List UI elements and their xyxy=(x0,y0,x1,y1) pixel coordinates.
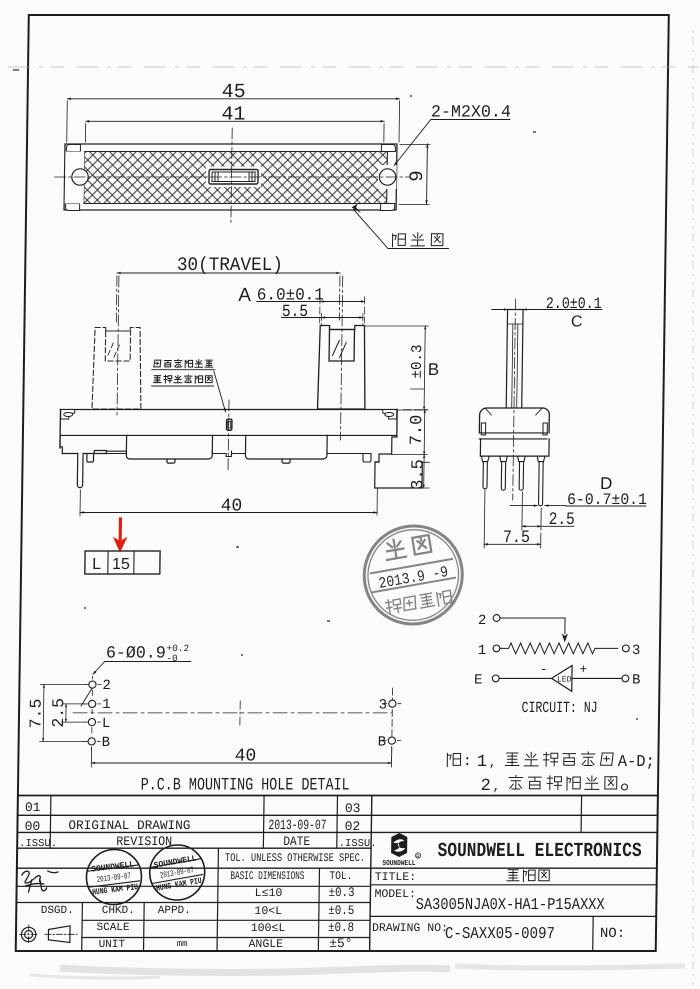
svg-text:ORIGINAL DRAWING: ORIGINAL DRAWING xyxy=(68,818,190,833)
svg-text:00: 00 xyxy=(25,819,41,834)
svg-text:,: , xyxy=(489,755,497,770)
svg-text:TITLE:: TITLE: xyxy=(375,871,417,884)
svg-text:+: + xyxy=(579,662,587,677)
svg-text:C-SAXX05-0097: C-SAXX05-0097 xyxy=(445,924,555,943)
svg-text:03: 03 xyxy=(345,801,361,816)
svg-text:5.5: 5.5 xyxy=(282,303,308,322)
svg-text:2: 2 xyxy=(480,777,490,796)
svg-text:,: , xyxy=(492,779,500,794)
svg-text:10<L: 10<L xyxy=(254,905,282,918)
svg-text:A-D;: A-D; xyxy=(618,752,655,771)
svg-text::: : xyxy=(463,753,472,770)
svg-text:B: B xyxy=(428,360,440,379)
svg-text:BASIC DIMENSIONS: BASIC DIMENSIONS xyxy=(230,870,304,883)
svg-text:DRAWING NO:: DRAWING NO: xyxy=(372,922,448,935)
svg-text:TOL.: TOL. xyxy=(329,870,352,883)
svg-text:CHKD.: CHKD. xyxy=(102,905,135,917)
svg-text:7.0: 7.0 xyxy=(408,415,427,446)
svg-text:UNIT: UNIT xyxy=(99,939,126,951)
svg-text:40: 40 xyxy=(220,497,242,517)
svg-text:30(TRAVEL): 30(TRAVEL) xyxy=(177,254,283,276)
svg-text:.ISSU.: .ISSU. xyxy=(339,838,377,850)
svg-text:41: 41 xyxy=(221,104,245,127)
svg-text:±0.3: ±0.3 xyxy=(409,345,426,379)
svg-text:SA3005NJA0X-HA1-P15AXXX: SA3005NJA0X-HA1-P15AXXX xyxy=(416,895,605,914)
svg-text:L: L xyxy=(92,556,101,573)
svg-text:01: 01 xyxy=(25,800,41,815)
svg-text:45: 45 xyxy=(222,81,246,104)
svg-text:2.5: 2.5 xyxy=(49,698,68,728)
svg-text:SOUNDWELL: SOUNDWELL xyxy=(382,860,416,868)
svg-text:2013-09-07: 2013-09-07 xyxy=(268,818,326,834)
svg-text:LED: LED xyxy=(557,676,572,685)
svg-text:1: 1 xyxy=(478,643,487,659)
svg-text:E: E xyxy=(474,673,483,689)
svg-text:SOUNDWELL ELECTRONICS: SOUNDWELL ELECTRONICS xyxy=(437,840,641,863)
svg-text:±0.8: ±0.8 xyxy=(328,920,354,935)
svg-text:A: A xyxy=(238,285,251,306)
svg-text:NO:: NO: xyxy=(600,926,625,942)
svg-text:9: 9 xyxy=(406,170,428,181)
svg-text:R: R xyxy=(416,853,420,860)
svg-text:-: - xyxy=(540,662,548,677)
svg-text:REVISION: REVISION xyxy=(116,834,172,849)
svg-text:MODEL:: MODEL: xyxy=(374,888,416,901)
svg-text:B: B xyxy=(378,735,387,751)
svg-text:±5°: ±5° xyxy=(329,936,353,951)
svg-text:7.5: 7.5 xyxy=(26,699,45,729)
svg-text:.ISSU.: .ISSU. xyxy=(19,838,57,850)
svg-text:DATE: DATE xyxy=(283,834,310,849)
svg-text:±0.3: ±0.3 xyxy=(328,885,354,900)
svg-text:3: 3 xyxy=(632,643,641,659)
svg-text:C: C xyxy=(571,314,583,331)
svg-text:7.5: 7.5 xyxy=(503,528,530,548)
svg-text:2013.9 -9: 2013.9 -9 xyxy=(377,563,449,593)
svg-text:APPD.: APPD. xyxy=(158,905,191,917)
svg-text:L: L xyxy=(102,716,111,732)
svg-text:2.0±0.1: 2.0±0.1 xyxy=(546,295,602,313)
svg-text:ANGLE: ANGLE xyxy=(248,938,283,951)
svg-text:SCALE: SCALE xyxy=(96,922,130,934)
svg-text:P.C.B MOUNTING HOLE DETAIL: P.C.B MOUNTING HOLE DETAIL xyxy=(140,776,349,796)
svg-text:B: B xyxy=(632,673,641,689)
svg-text:3: 3 xyxy=(379,698,388,714)
svg-text:2: 2 xyxy=(478,613,487,629)
svg-text:1: 1 xyxy=(102,697,111,713)
svg-text:2: 2 xyxy=(102,678,111,694)
svg-text:6-Ø0.9: 6-Ø0.9 xyxy=(106,645,166,664)
svg-text:B: B xyxy=(102,735,111,751)
svg-text:1: 1 xyxy=(477,753,487,772)
svg-text:L≤10: L≤10 xyxy=(255,887,283,900)
svg-text:TOL. UNLESS OTHERWISE SPEC.: TOL. UNLESS OTHERWISE SPEC. xyxy=(225,852,365,865)
svg-text:-0: -0 xyxy=(166,653,178,664)
svg-text:100≤L: 100≤L xyxy=(251,922,286,935)
svg-text:40: 40 xyxy=(234,747,256,767)
svg-text:DSGD.: DSGD. xyxy=(41,905,74,917)
svg-text:mm: mm xyxy=(177,939,188,949)
svg-text:CIRCUIT: NJ: CIRCUIT: NJ xyxy=(521,699,597,717)
svg-text:15: 15 xyxy=(112,556,130,573)
svg-text:2.5: 2.5 xyxy=(549,510,575,530)
svg-text:02: 02 xyxy=(345,819,361,834)
svg-text:3.5: 3.5 xyxy=(409,459,428,490)
svg-text:±0.5: ±0.5 xyxy=(328,903,354,918)
